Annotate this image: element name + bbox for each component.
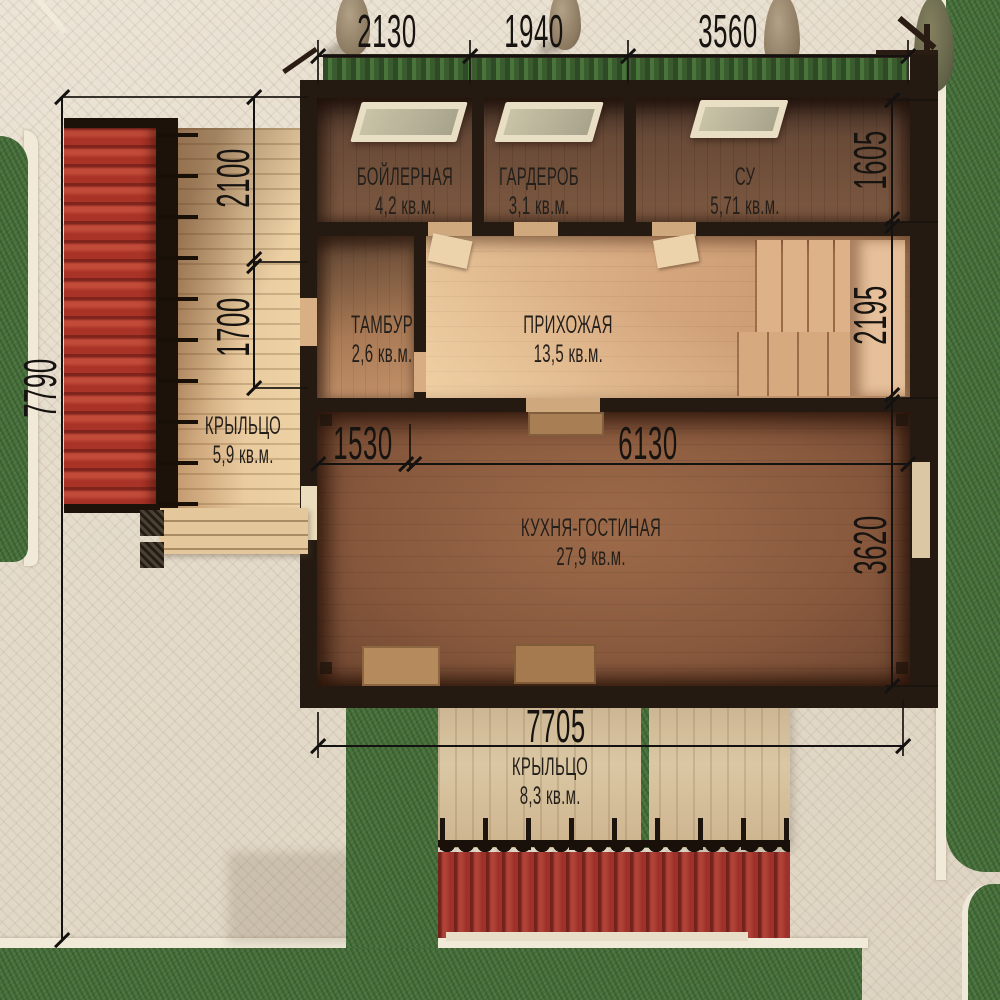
dimension-line-bottom (318, 745, 904, 747)
rafter (158, 379, 198, 383)
room-label-porch-bottom: КРЫЛЬЦО 8,3 кв.м. (486, 753, 613, 811)
dimension-label-top-2: 1940 (481, 4, 587, 58)
site-plan-scene: 2130 1940 3560 1530 6130 7705 1605 2195 … (0, 0, 1000, 1000)
rafter (158, 256, 198, 260)
skylight-wardrobe (494, 102, 603, 142)
rafter (158, 338, 198, 342)
path-edge-topleft (4, 0, 67, 34)
door-opening-kitchen (526, 398, 600, 412)
entry-door-left (300, 298, 317, 346)
room-label-wardrobe: ГАРДЕРОБ 3,1 кв.м. (472, 163, 605, 221)
floor-mat (362, 646, 440, 686)
grass-bottom-strip (0, 948, 862, 1000)
room-label-porch-left: КРЫЛЬЦО 5,9 кв.м. (179, 412, 306, 470)
extension-line (317, 712, 319, 758)
wall-bottom (300, 686, 938, 708)
extension-line (254, 261, 308, 263)
porch-left-roof-edge-top (64, 118, 178, 128)
dimension-label-right-1: 1605 (843, 107, 897, 213)
dimension-line-left-outer (61, 97, 63, 940)
dimension-label-top-3: 3560 (675, 4, 781, 58)
floor-mat (514, 644, 596, 684)
grass-porch-strip (346, 708, 438, 948)
room-label-tambour: ТАМБУР 2,6 кв.м. (330, 311, 433, 369)
rafter (158, 297, 198, 301)
room-label-bathroom: СУ 5,71 кв.м. (687, 163, 803, 221)
wall-interior-h1 (310, 222, 936, 236)
rafter (158, 174, 198, 178)
room-label-hallway: ПРИХОЖАЯ 13,5 кв.м. (493, 311, 642, 369)
wall-top (300, 80, 938, 98)
porch-bottom-roof (438, 852, 790, 938)
window-kitchen-right (912, 462, 930, 558)
extension-line (627, 40, 629, 84)
wall-right (910, 55, 938, 708)
extension-line (469, 40, 471, 84)
dimension-label-top-1: 2130 (334, 4, 440, 58)
skylight-pane (503, 109, 594, 135)
skylight-bathroom (690, 100, 789, 138)
skylight-pane (699, 107, 780, 131)
extension-line (907, 40, 909, 84)
dimension-label-bottom: 7705 (503, 699, 609, 753)
grass-right-strip (946, 0, 1000, 872)
wall-wardrobe-bathroom (624, 98, 636, 222)
porch-left-roof-beam (156, 122, 178, 514)
wall-interior-h2 (310, 398, 936, 412)
skylight-pane (359, 109, 458, 135)
dimension-label-right-2: 2195 (843, 262, 897, 368)
floor-mat (528, 412, 604, 436)
porch-left-roof (64, 126, 158, 510)
corner-post (896, 662, 908, 674)
dimension-label-kitchen-1: 1530 (310, 416, 416, 470)
wall-left (300, 80, 317, 708)
room-label-boiler: БОЙЛЕРНАЯ 4,2 кв.м. (325, 163, 486, 221)
extension-line (62, 96, 308, 98)
skylight-boiler (350, 102, 467, 142)
door-opening-wardrobe (514, 222, 558, 236)
foundation-pier (140, 510, 164, 536)
rafter (158, 502, 198, 506)
dimension-label-kitchen-2: 6130 (595, 416, 701, 470)
dimension-label-left-inner-1: 2100 (206, 125, 260, 231)
foundation-pier (140, 542, 164, 568)
dimension-label-left-inner-2: 1700 (206, 274, 260, 380)
corner-post (896, 414, 908, 426)
grass-corner-bottom-right (962, 884, 1000, 1000)
rafter (158, 133, 198, 137)
dimension-label-left-outer: 7790 (13, 335, 67, 441)
porch-left-steps (160, 508, 308, 554)
stairs-lower-flight (737, 332, 850, 396)
corner-post (320, 662, 332, 674)
porch-bottom-roof-edge (446, 932, 748, 941)
extension-line (317, 40, 319, 84)
rafter (158, 215, 198, 219)
room-label-kitchen: КУХНЯ-ГОСТИНАЯ 27,9 кв.м. (474, 514, 708, 572)
extension-line (254, 387, 308, 389)
dimension-label-right-3: 3620 (843, 492, 897, 598)
stairs-upper-flight (755, 240, 850, 332)
